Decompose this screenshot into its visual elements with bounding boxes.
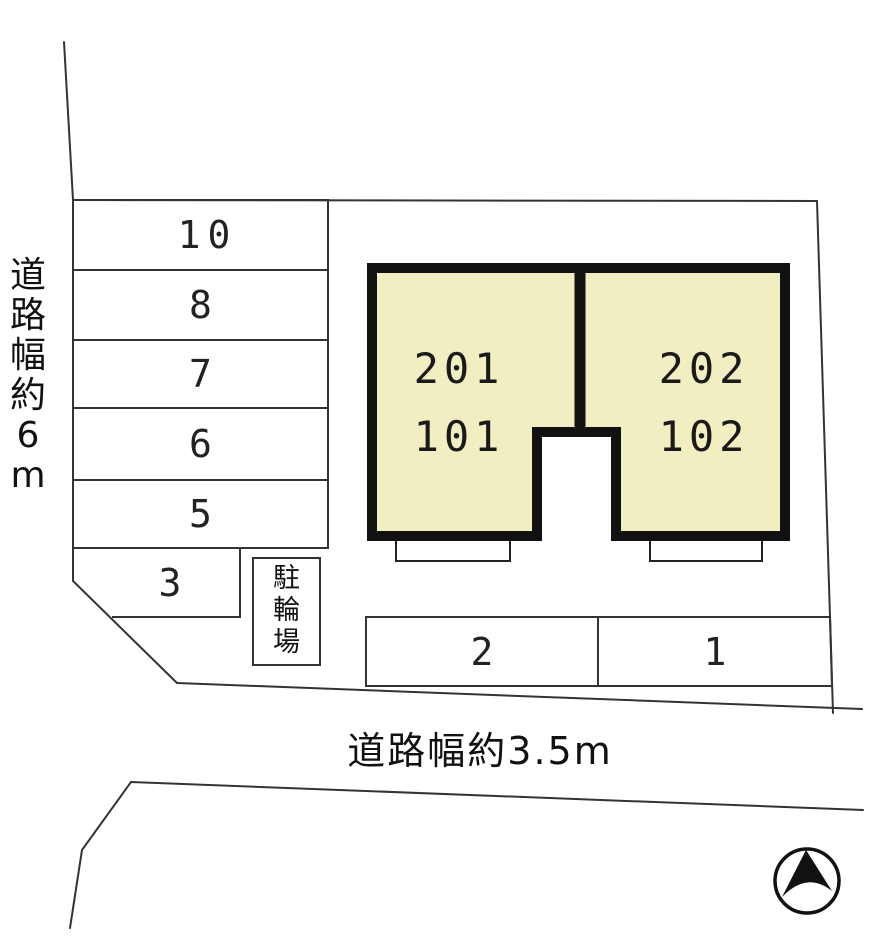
unit-label-right: 202 102	[620, 335, 788, 471]
road-width-left-label: 道 路 幅 約 6 m	[6, 256, 50, 496]
parking-space-label-2: 2	[366, 617, 598, 686]
road-left-char: m	[10, 456, 45, 496]
parking-space-label-6: 6	[73, 408, 328, 480]
bicycle-char: 駐	[273, 563, 300, 595]
unit-label-left: 201 101	[380, 335, 538, 471]
parking-space-label-1: 1	[598, 617, 832, 686]
road-left-char: 路	[10, 296, 46, 336]
parking-space-label-8: 8	[73, 270, 328, 340]
north-arrow-icon	[775, 849, 839, 913]
road-bottom-far-edge	[70, 782, 863, 928]
unit-201: 201	[380, 335, 538, 403]
bicycle-char: 場	[273, 627, 300, 659]
unit-101: 101	[380, 403, 538, 471]
parking-space-label-5: 5	[73, 480, 328, 548]
road-left-char: 道	[10, 256, 46, 296]
parking-space-label-7: 7	[73, 340, 328, 408]
road-left-char: 幅	[10, 336, 46, 376]
road-width-bottom-label: 道路幅約3.5m	[330, 722, 630, 772]
bicycle-char: 輪	[273, 595, 300, 627]
parking-space-label-10: 10	[73, 200, 335, 270]
site-plan-canvas: 道 路 幅 約 6 m 10 8 7 6 5 3 2 1 201 101 202…	[0, 0, 896, 946]
unit-202: 202	[620, 335, 788, 403]
parking-space-label-3: 3	[100, 548, 240, 617]
unit-102: 102	[620, 403, 788, 471]
road-left-char: 6	[17, 416, 40, 456]
road-left-char: 約	[10, 376, 46, 416]
bicycle-parking-label: 駐 輪 場	[253, 563, 320, 659]
